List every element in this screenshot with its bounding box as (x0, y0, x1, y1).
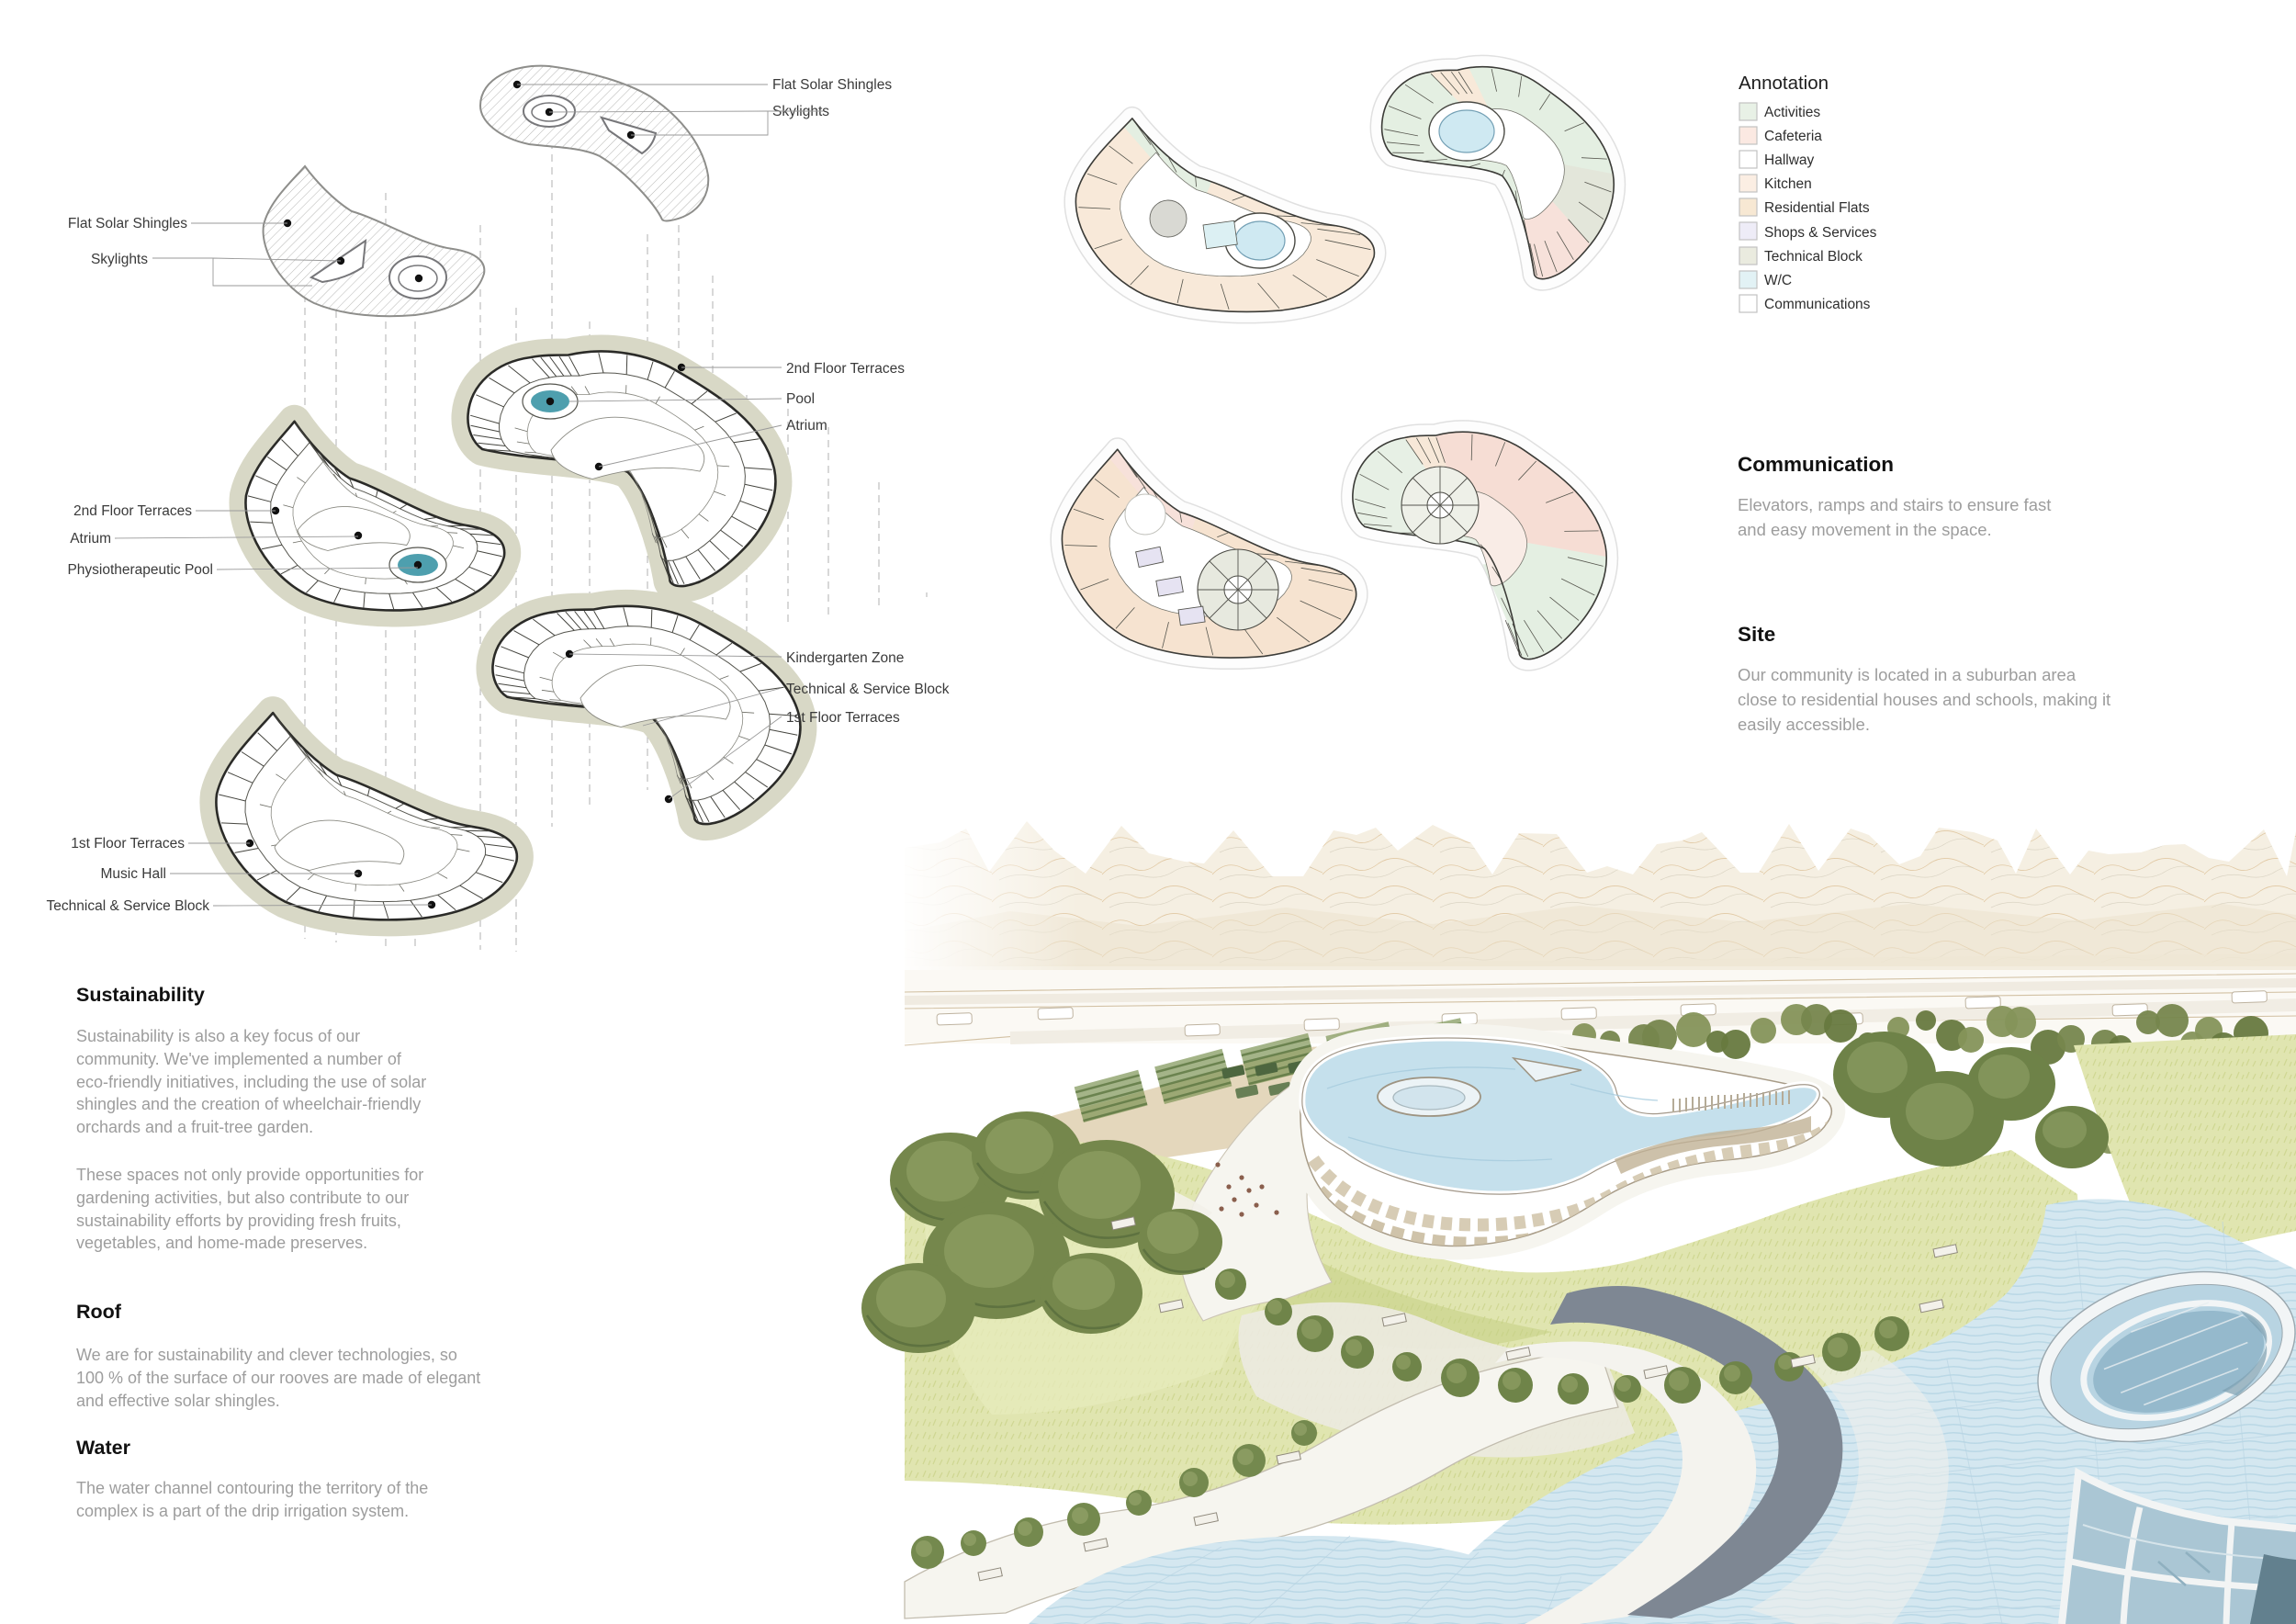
svg-text:Technical & Service Block: Technical & Service Block (786, 682, 950, 697)
svg-text:2nd Floor Terraces: 2nd Floor Terraces (786, 361, 905, 377)
svg-text:Site: Site (1738, 623, 1775, 646)
svg-text:easily accessible.: easily accessible. (1738, 715, 1870, 734)
svg-text:complex is a part of the drip: complex is a part of the drip irrigation… (76, 1502, 409, 1520)
svg-text:Kitchen: Kitchen (1764, 176, 1812, 192)
svg-text:These spaces not only provide: These spaces not only provide opportunit… (76, 1166, 423, 1184)
svg-text:and easy movement in the space: and easy movement in the space. (1738, 520, 1992, 539)
svg-text:Residential Flats: Residential Flats (1764, 200, 1870, 216)
svg-text:close to residential houses an: close to residential houses and schools,… (1738, 690, 2110, 709)
svg-text:Physiotherapeutic Pool: Physiotherapeutic Pool (67, 562, 213, 578)
svg-text:community. We've implemented a: community. We've implemented a number of (76, 1050, 402, 1068)
svg-text:100 % of the surface of our ro: 100 % of the surface of our rooves are m… (76, 1369, 480, 1387)
svg-text:1st Floor Terraces: 1st Floor Terraces (71, 836, 185, 851)
svg-text:Skylights: Skylights (772, 104, 829, 119)
svg-text:Water: Water (76, 1437, 131, 1459)
svg-text:Atrium: Atrium (70, 531, 111, 547)
svg-text:Communication: Communication (1738, 453, 1894, 476)
svg-text:Flat Solar Shingles: Flat Solar Shingles (68, 216, 187, 231)
svg-text:vegetables, and home-made pres: vegetables, and home-made preserves. (76, 1234, 367, 1252)
svg-text:gardening activities, but also: gardening activities, but also contribut… (76, 1189, 409, 1207)
svg-text:and effective solar shingles.: and effective solar shingles. (76, 1392, 280, 1410)
svg-text:Technical Block: Technical Block (1764, 249, 1863, 265)
svg-text:Shops & Services: Shops & Services (1764, 225, 1877, 241)
svg-text:1st Floor Terraces: 1st Floor Terraces (786, 710, 900, 726)
svg-text:Music Hall: Music Hall (101, 866, 166, 882)
svg-text:Technical & Service Block: Technical & Service Block (47, 898, 210, 914)
svg-text:We are for sustainability and: We are for sustainability and clever tec… (76, 1346, 457, 1364)
svg-text:Our community is located in a: Our community is located in a suburban a… (1738, 665, 2077, 684)
svg-text:Elevators, ramps and stairs to: Elevators, ramps and stairs to ensure fa… (1738, 495, 2051, 514)
svg-text:2nd Floor Terraces: 2nd Floor Terraces (73, 503, 192, 519)
svg-text:Communications: Communications (1764, 297, 1871, 312)
svg-text:eco-friendly initiatives, incl: eco-friendly initiatives, including the … (76, 1073, 426, 1091)
svg-text:Pool: Pool (786, 391, 815, 407)
svg-text:Flat Solar Shingles: Flat Solar Shingles (772, 77, 892, 93)
svg-text:shingles and the creation of w: shingles and the creation of wheelchair-… (76, 1095, 421, 1113)
svg-text:Hallway: Hallway (1764, 152, 1815, 168)
svg-text:The water channel contouring t: The water channel contouring the territo… (76, 1479, 428, 1497)
svg-text:Skylights: Skylights (91, 252, 148, 267)
svg-text:Annotation: Annotation (1739, 73, 1829, 94)
svg-text:W/C: W/C (1764, 273, 1792, 288)
svg-text:Activities: Activities (1764, 105, 1820, 120)
svg-text:Sustainability is also a key f: Sustainability is also a key focus of ou… (76, 1027, 360, 1045)
svg-text:Sustainability: Sustainability (76, 984, 205, 1006)
svg-text:orchards and a fruit-tree gard: orchards and a fruit-tree garden. (76, 1118, 313, 1136)
svg-text:sustainability efforts by prov: sustainability efforts by providing fres… (76, 1212, 401, 1230)
svg-text:Cafeteria: Cafeteria (1764, 129, 1822, 144)
svg-text:Roof: Roof (76, 1301, 122, 1323)
svg-text:Kindergarten Zone: Kindergarten Zone (786, 650, 904, 666)
svg-text:Atrium: Atrium (786, 418, 827, 434)
